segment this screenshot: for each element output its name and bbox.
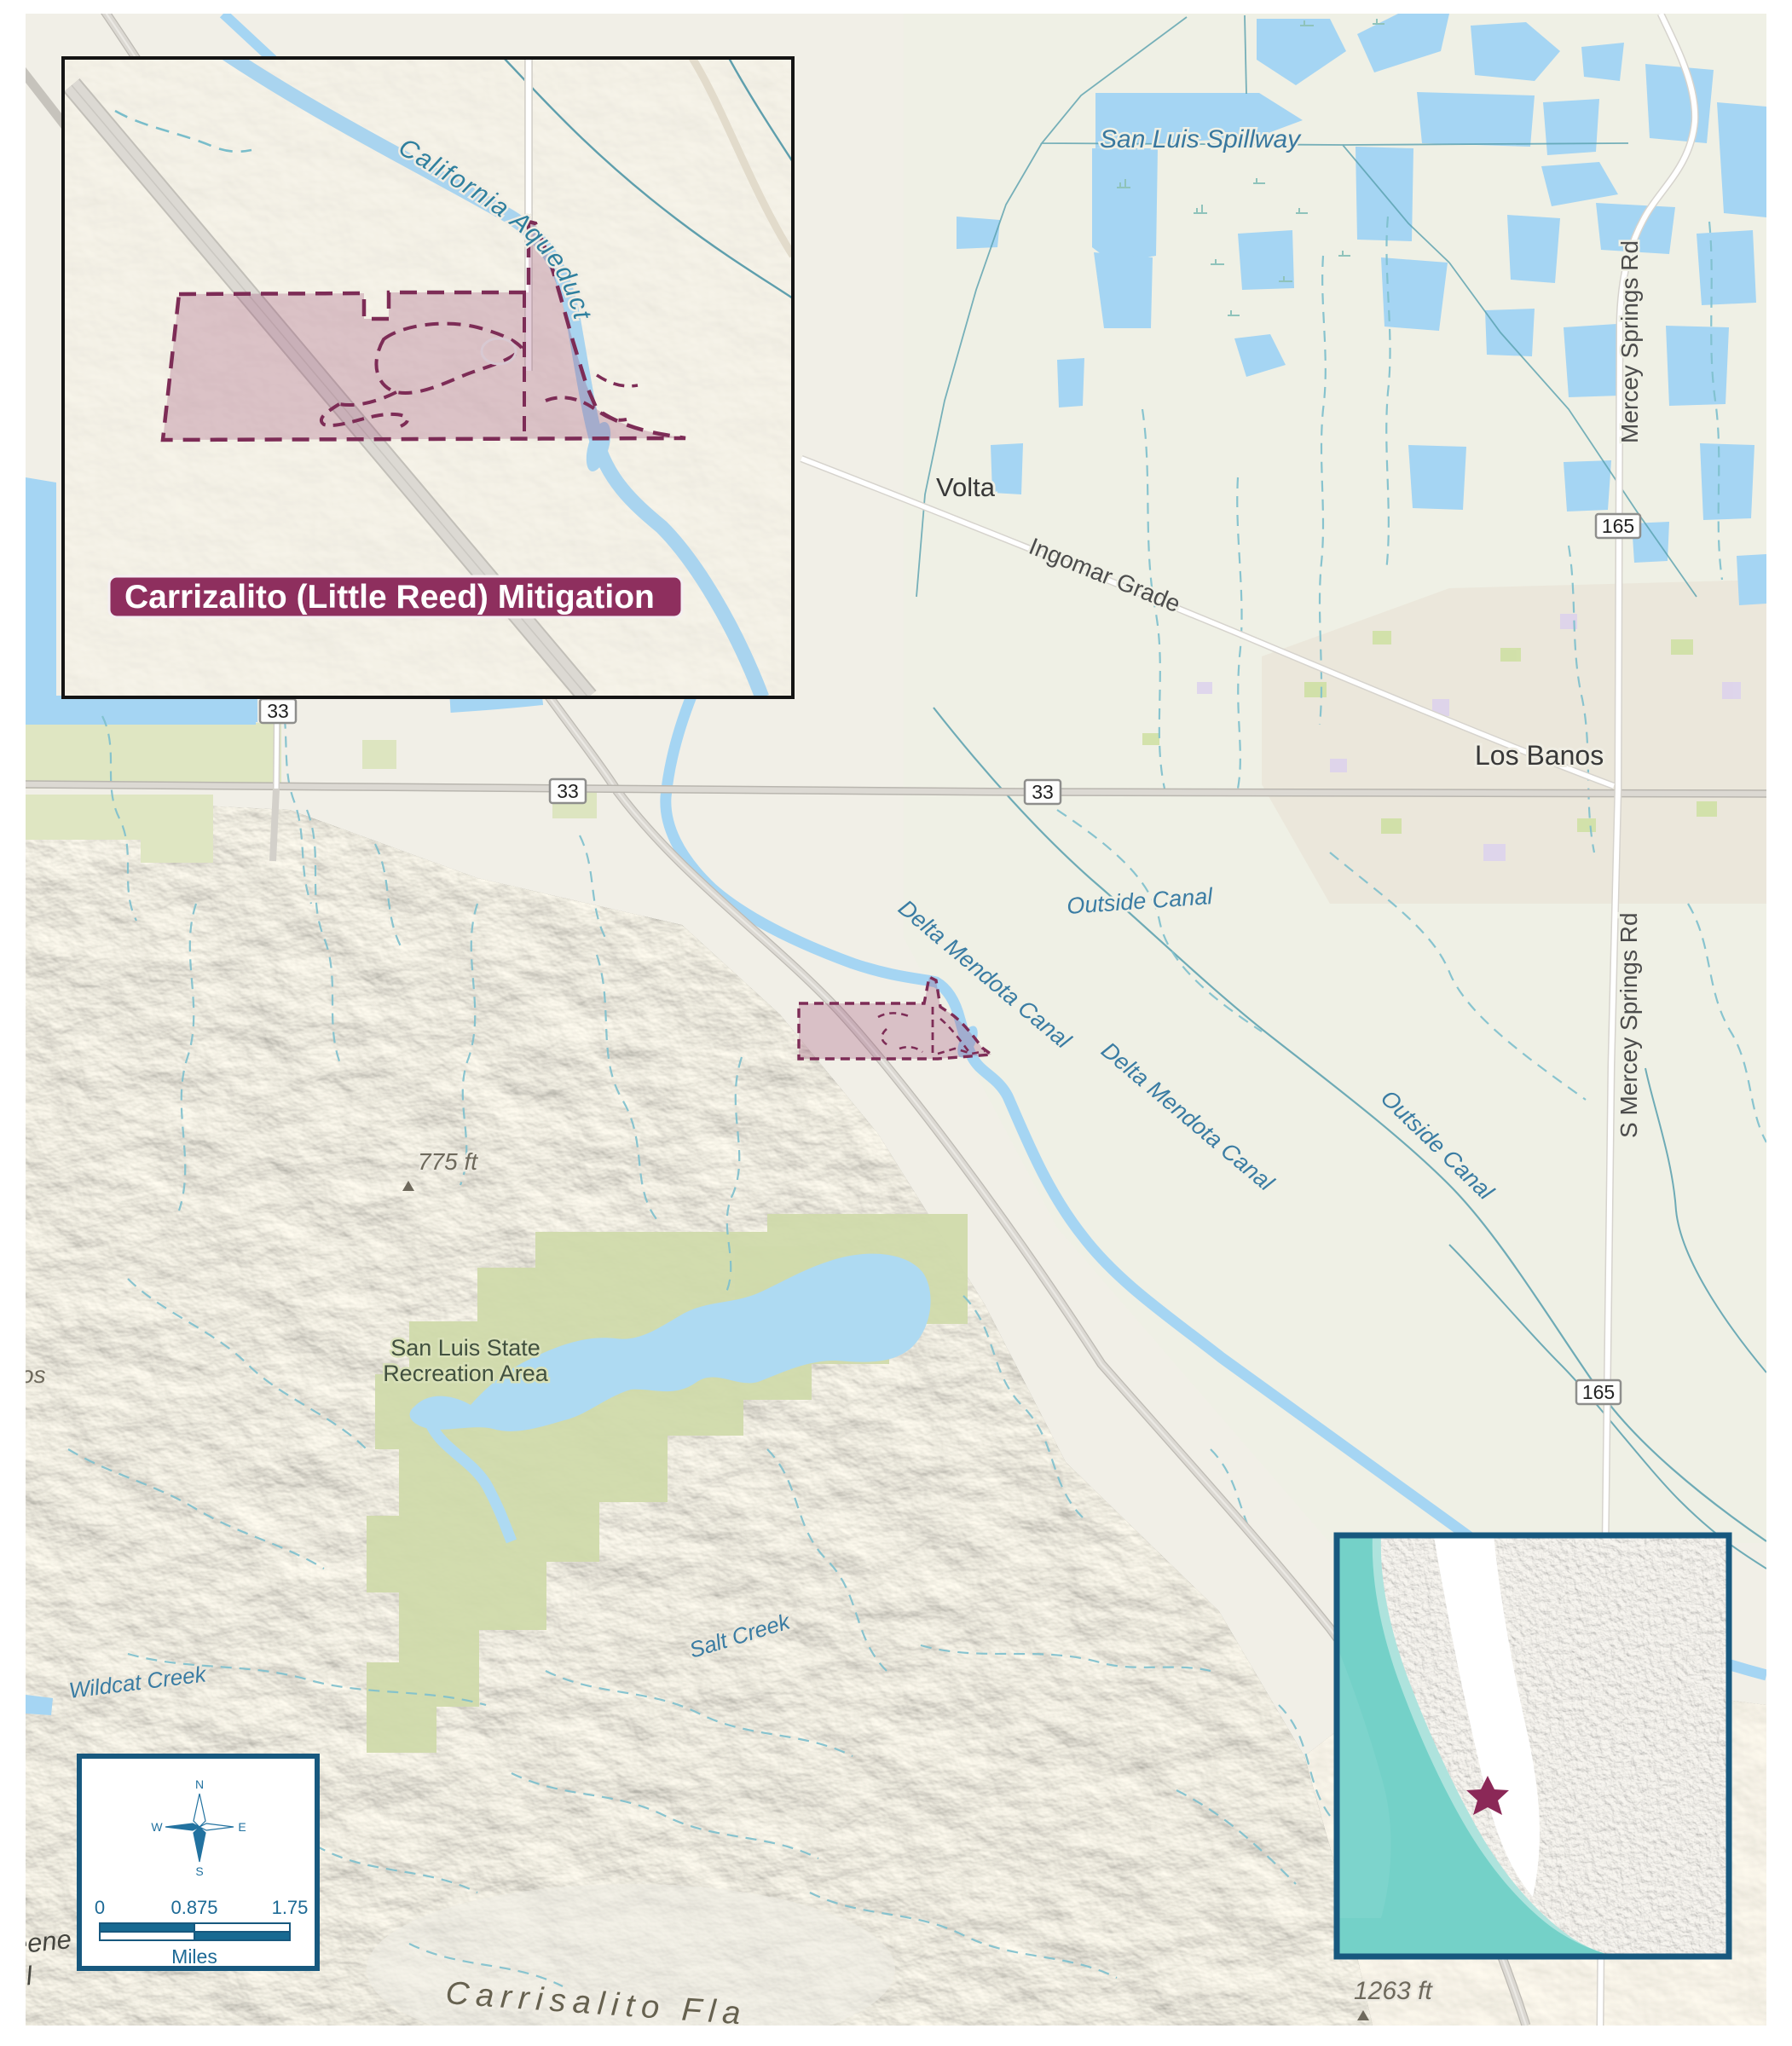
svg-text:N: N (195, 1777, 204, 1791)
svg-text:Mercey Springs Rd: Mercey Springs Rd (1616, 240, 1643, 443)
svg-text:Recreation Area: Recreation Area (383, 1361, 549, 1386)
svg-text:1.75: 1.75 (272, 1897, 309, 1918)
svg-text:33: 33 (267, 700, 289, 722)
svg-text:1263 ft: 1263 ft (1354, 1977, 1433, 2005)
svg-text:Volta: Volta (936, 472, 996, 502)
svg-text:Los Banos: Los Banos (1475, 740, 1604, 771)
svg-text:165: 165 (1602, 515, 1634, 537)
svg-text:San Luis State: San Luis State (390, 1335, 540, 1361)
svg-text:San Luis Spillway: San Luis Spillway (1100, 125, 1302, 153)
svg-text:Miles: Miles (171, 1945, 217, 1968)
svg-text:0.875: 0.875 (171, 1897, 217, 1918)
svg-text:Carrizalito (Little Reed) Miti: Carrizalito (Little Reed) Mitigation (124, 579, 655, 616)
svg-text:0: 0 (95, 1897, 105, 1918)
svg-text:E: E (238, 1820, 246, 1834)
svg-text:S Mercey Springs Rd: S Mercey Springs Rd (1616, 912, 1642, 1138)
svg-text:S: S (195, 1864, 203, 1878)
svg-text:775 ft: 775 ft (418, 1148, 478, 1175)
svg-text:165: 165 (1582, 1381, 1615, 1403)
svg-text:33: 33 (557, 780, 579, 802)
svg-text:33: 33 (1032, 781, 1054, 803)
svg-text:W: W (151, 1820, 163, 1834)
